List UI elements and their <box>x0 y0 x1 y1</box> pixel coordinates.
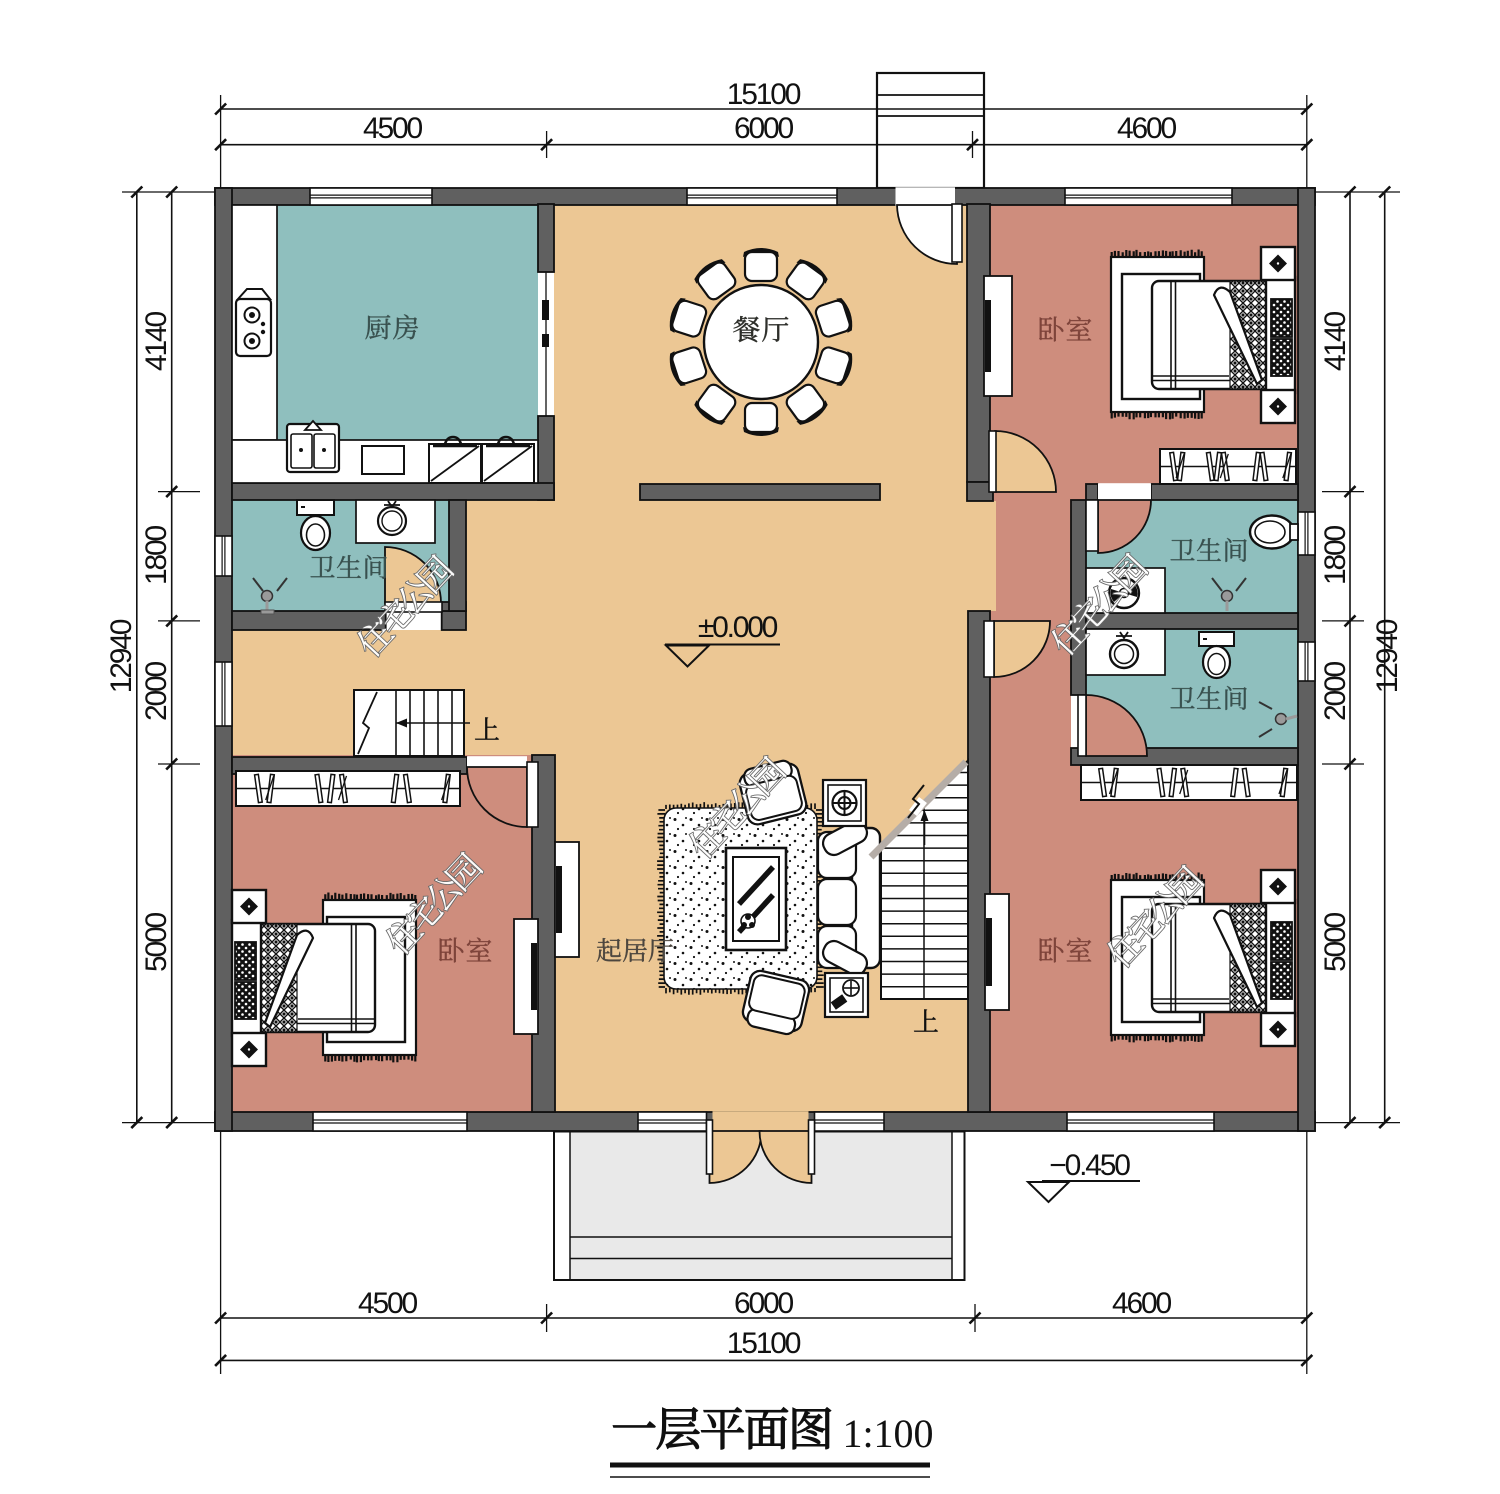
svg-text:5000: 5000 <box>140 913 173 972</box>
svg-text:−0.450: −0.450 <box>1049 1149 1130 1182</box>
svg-text:5000: 5000 <box>1319 913 1352 972</box>
svg-text:4600: 4600 <box>1117 112 1176 145</box>
svg-text:2000: 2000 <box>1319 662 1352 721</box>
svg-text:12940: 12940 <box>1371 619 1404 693</box>
svg-text:15100: 15100 <box>727 78 801 111</box>
svg-text:4140: 4140 <box>140 312 173 371</box>
svg-text:4500: 4500 <box>363 112 422 145</box>
svg-text:1800: 1800 <box>1319 526 1352 585</box>
svg-text:4600: 4600 <box>1112 1287 1171 1320</box>
svg-text:6000: 6000 <box>734 1287 793 1320</box>
svg-text:1:100: 1:100 <box>842 1411 933 1456</box>
svg-text:6000: 6000 <box>734 112 793 145</box>
svg-text:1800: 1800 <box>140 526 173 585</box>
svg-text:12940: 12940 <box>105 619 138 693</box>
svg-text:±0.000: ±0.000 <box>698 611 778 644</box>
svg-text:4140: 4140 <box>1319 312 1352 371</box>
svg-text:15100: 15100 <box>727 1327 801 1360</box>
svg-text:2000: 2000 <box>140 662 173 721</box>
svg-text:4500: 4500 <box>358 1287 417 1320</box>
